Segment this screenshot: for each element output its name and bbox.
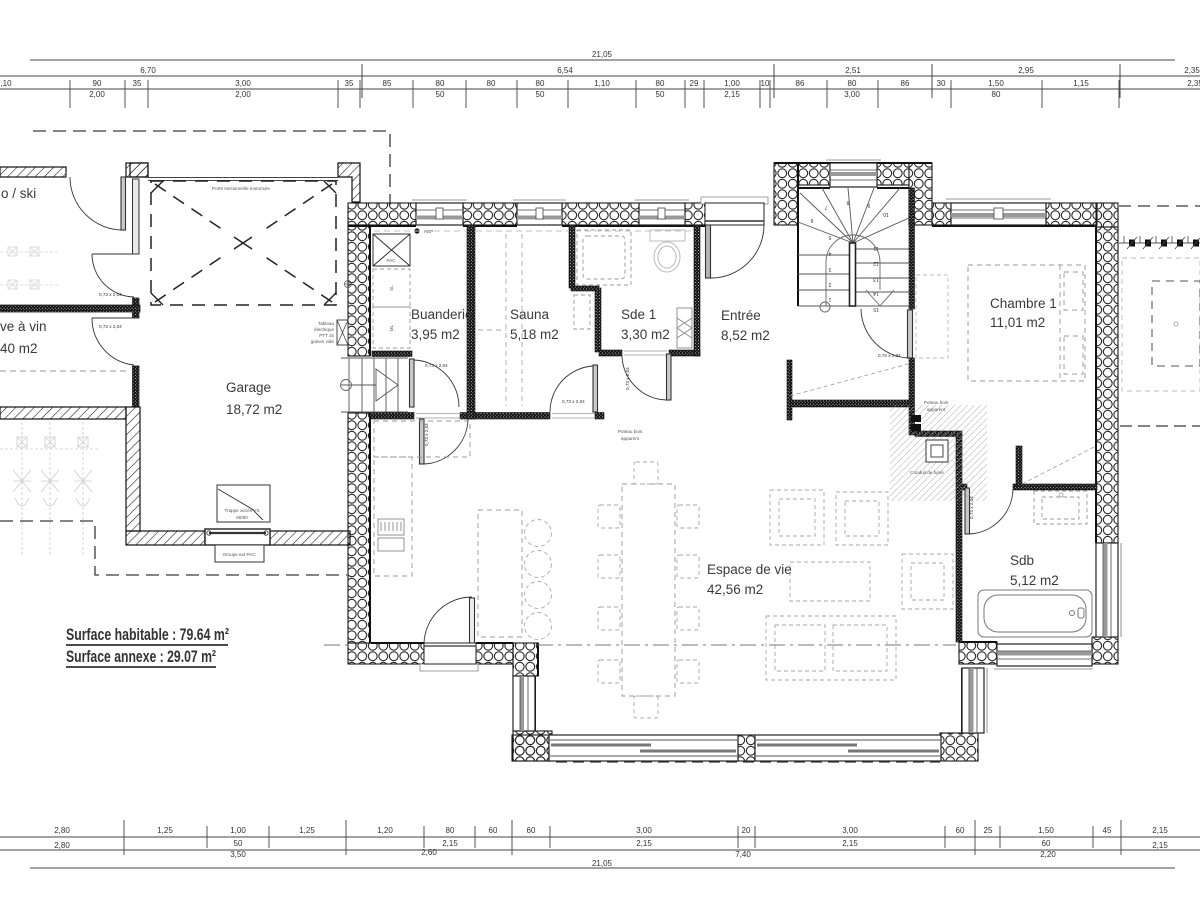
svg-text:1,25: 1,25 <box>157 826 173 835</box>
svg-text:60/60: 60/60 <box>236 515 248 520</box>
svg-text:apparent: apparent <box>621 436 640 441</box>
svg-text:0,73 x 2,04: 0,73 x 2,04 <box>99 324 122 329</box>
svg-text:12: 12 <box>873 260 879 266</box>
svg-text:2,15: 2,15 <box>442 839 458 848</box>
svg-text:0,73 x 2,04: 0,73 x 2,04 <box>625 367 630 390</box>
svg-text:50: 50 <box>656 90 665 99</box>
svg-text:60: 60 <box>527 826 536 835</box>
svg-text:60: 60 <box>1042 839 1051 848</box>
svg-text:3,00: 3,00 <box>844 90 860 99</box>
svg-text:apparent: apparent <box>927 407 946 412</box>
svg-text:18,72 m2: 18,72 m2 <box>226 402 282 417</box>
svg-text:1,25: 1,25 <box>299 826 315 835</box>
svg-text:ve à vin: ve à vin <box>0 319 47 334</box>
svg-text:2,15: 2,15 <box>724 90 740 99</box>
svg-text:2,15: 2,15 <box>1152 841 1168 850</box>
svg-text:90: 90 <box>93 79 102 88</box>
svg-text:1,20: 1,20 <box>377 826 393 835</box>
svg-text:50: 50 <box>536 90 545 99</box>
svg-text:3: 3 <box>828 266 831 272</box>
svg-text:86: 86 <box>901 79 910 88</box>
svg-text:Buanderie: Buanderie <box>411 307 473 322</box>
svg-text:3,95 m2: 3,95 m2 <box>411 327 460 342</box>
svg-text:3,30 m2: 3,30 m2 <box>621 327 670 342</box>
svg-text:50: 50 <box>234 839 243 848</box>
svg-text:6,70: 6,70 <box>140 66 156 75</box>
svg-text:29: 29 <box>690 79 699 88</box>
svg-text:2,15: 2,15 <box>1152 826 1168 835</box>
svg-text:13: 13 <box>873 276 879 282</box>
svg-text:1,00: 1,00 <box>230 826 246 835</box>
svg-text:Entrée: Entrée <box>721 308 761 323</box>
svg-text:3,00: 3,00 <box>235 79 251 88</box>
svg-text:1,50: 1,50 <box>1038 826 1054 835</box>
svg-text:Surface habitable : 79.64 m²: Surface habitable : 79.64 m² <box>66 625 229 644</box>
svg-text:Groupe ext PAC: Groupe ext PAC <box>222 552 256 557</box>
svg-text:PTT 3x: PTT 3x <box>319 333 334 338</box>
svg-text:45: 45 <box>1103 826 1112 835</box>
svg-text:0,73 x 2,04: 0,73 x 2,04 <box>969 496 974 519</box>
svg-text:8: 8 <box>846 199 849 205</box>
svg-text:2,80: 2,80 <box>54 841 70 850</box>
svg-text:PAC: PAC <box>386 258 396 263</box>
svg-text:7,40: 7,40 <box>735 850 751 859</box>
svg-text:35: 35 <box>345 79 354 88</box>
svg-text:5,12 m2: 5,12 m2 <box>1010 573 1059 588</box>
svg-text:SL: SL <box>389 285 394 291</box>
svg-text:80: 80 <box>536 79 545 88</box>
svg-text:60: 60 <box>489 826 498 835</box>
svg-text:3,50: 3,50 <box>230 850 246 859</box>
svg-text:0,73 x 2,04: 0,73 x 2,04 <box>99 292 122 297</box>
svg-text:Trappe accès VS: Trappe accès VS <box>224 508 259 513</box>
svg-text:Tableau: Tableau <box>318 321 335 326</box>
svg-text:Poteau bois: Poteau bois <box>924 400 949 405</box>
svg-text:4: 4 <box>828 250 831 256</box>
svg-text:10: 10 <box>883 211 889 217</box>
svg-text:Garage: Garage <box>226 380 271 395</box>
svg-text:6: 6 <box>810 217 813 223</box>
svg-text:2,15: 2,15 <box>636 839 652 848</box>
svg-text:25: 25 <box>984 826 993 835</box>
svg-text:11,01 m2: 11,01 m2 <box>990 315 1045 330</box>
svg-text:10: 10 <box>761 79 770 88</box>
svg-text:2,20: 2,20 <box>1040 850 1056 859</box>
svg-text:11: 11 <box>873 245 878 251</box>
svg-text:2,00: 2,00 <box>89 90 105 99</box>
svg-text:0,73 x 2,04: 0,73 x 2,04 <box>425 363 448 368</box>
svg-text:60: 60 <box>956 826 965 835</box>
svg-text:Porte sectionnelle motorisée: Porte sectionnelle motorisée <box>212 186 270 191</box>
svg-text:0,73 x 2,04: 0,73 x 2,04 <box>878 353 901 358</box>
svg-text:ML: ML <box>389 324 394 331</box>
svg-text:86: 86 <box>796 79 805 88</box>
svg-text:21,05: 21,05 <box>592 50 613 59</box>
svg-text:6,54: 6,54 <box>557 66 573 75</box>
svg-text:Conduit de fumé: Conduit de fumé <box>910 470 944 475</box>
svg-text:14: 14 <box>873 290 879 296</box>
svg-text:30: 30 <box>937 79 946 88</box>
svg-text:50: 50 <box>436 90 445 99</box>
svg-text:85: 85 <box>383 79 392 88</box>
svg-text:Chambre 1: Chambre 1 <box>990 296 1057 311</box>
svg-text:5,18 m2: 5,18 m2 <box>510 327 559 342</box>
svg-text:2,15: 2,15 <box>842 839 858 848</box>
svg-text:0,73 x 2,04: 0,73 x 2,04 <box>424 423 429 446</box>
svg-text:2,35: 2,35 <box>1187 79 1200 88</box>
svg-text:,10: ,10 <box>0 79 12 88</box>
svg-text:Poteau bois: Poteau bois <box>618 429 643 434</box>
svg-text:1: 1 <box>828 296 831 302</box>
svg-text:3,00: 3,00 <box>842 826 858 835</box>
svg-text:AEP: AEP <box>424 229 433 234</box>
svg-text:7: 7 <box>824 204 827 210</box>
svg-text:2,95: 2,95 <box>1018 66 1034 75</box>
svg-text:80: 80 <box>992 90 1001 99</box>
svg-text:40 m2: 40 m2 <box>0 341 38 356</box>
svg-text:électrique: électrique <box>314 327 334 332</box>
svg-text:Espace de vie: Espace de vie <box>707 562 792 577</box>
svg-text:1,10: 1,10 <box>594 79 610 88</box>
svg-text:80: 80 <box>487 79 496 88</box>
svg-text:2,35: 2,35 <box>1184 66 1200 75</box>
svg-text:80: 80 <box>656 79 665 88</box>
svg-text:9: 9 <box>867 202 870 208</box>
svg-text:21,05: 21,05 <box>592 859 613 868</box>
svg-text:2: 2 <box>828 281 831 287</box>
svg-text:80: 80 <box>848 79 857 88</box>
svg-text:1,15: 1,15 <box>1073 79 1089 88</box>
svg-text:Sauna: Sauna <box>510 307 550 322</box>
svg-text:80: 80 <box>446 826 455 835</box>
svg-text:gaines vide: gaines vide <box>311 339 335 344</box>
svg-text:15: 15 <box>873 306 879 312</box>
svg-text:80: 80 <box>436 79 445 88</box>
svg-text:1,50: 1,50 <box>988 79 1004 88</box>
svg-text:1,00: 1,00 <box>724 79 740 88</box>
svg-text:2,00: 2,00 <box>235 90 251 99</box>
svg-text:2,51: 2,51 <box>845 66 861 75</box>
svg-text:35: 35 <box>133 79 142 88</box>
svg-text:20: 20 <box>742 826 751 835</box>
svg-text:Surface annexe : 29.07 m²: Surface annexe : 29.07 m² <box>66 647 216 666</box>
svg-text:42,56 m2: 42,56 m2 <box>707 582 763 597</box>
svg-text:0,73 x 2,04: 0,73 x 2,04 <box>562 399 585 404</box>
svg-text:2,80: 2,80 <box>54 826 70 835</box>
svg-text:2,60: 2,60 <box>421 848 437 857</box>
svg-text:o / ski: o / ski <box>1 186 36 201</box>
svg-text:Sdb: Sdb <box>1010 553 1034 568</box>
svg-text:8,52 m2: 8,52 m2 <box>721 328 770 343</box>
svg-text:Sde 1: Sde 1 <box>621 307 656 322</box>
svg-text:3,00: 3,00 <box>636 826 652 835</box>
svg-text:5: 5 <box>828 234 831 240</box>
